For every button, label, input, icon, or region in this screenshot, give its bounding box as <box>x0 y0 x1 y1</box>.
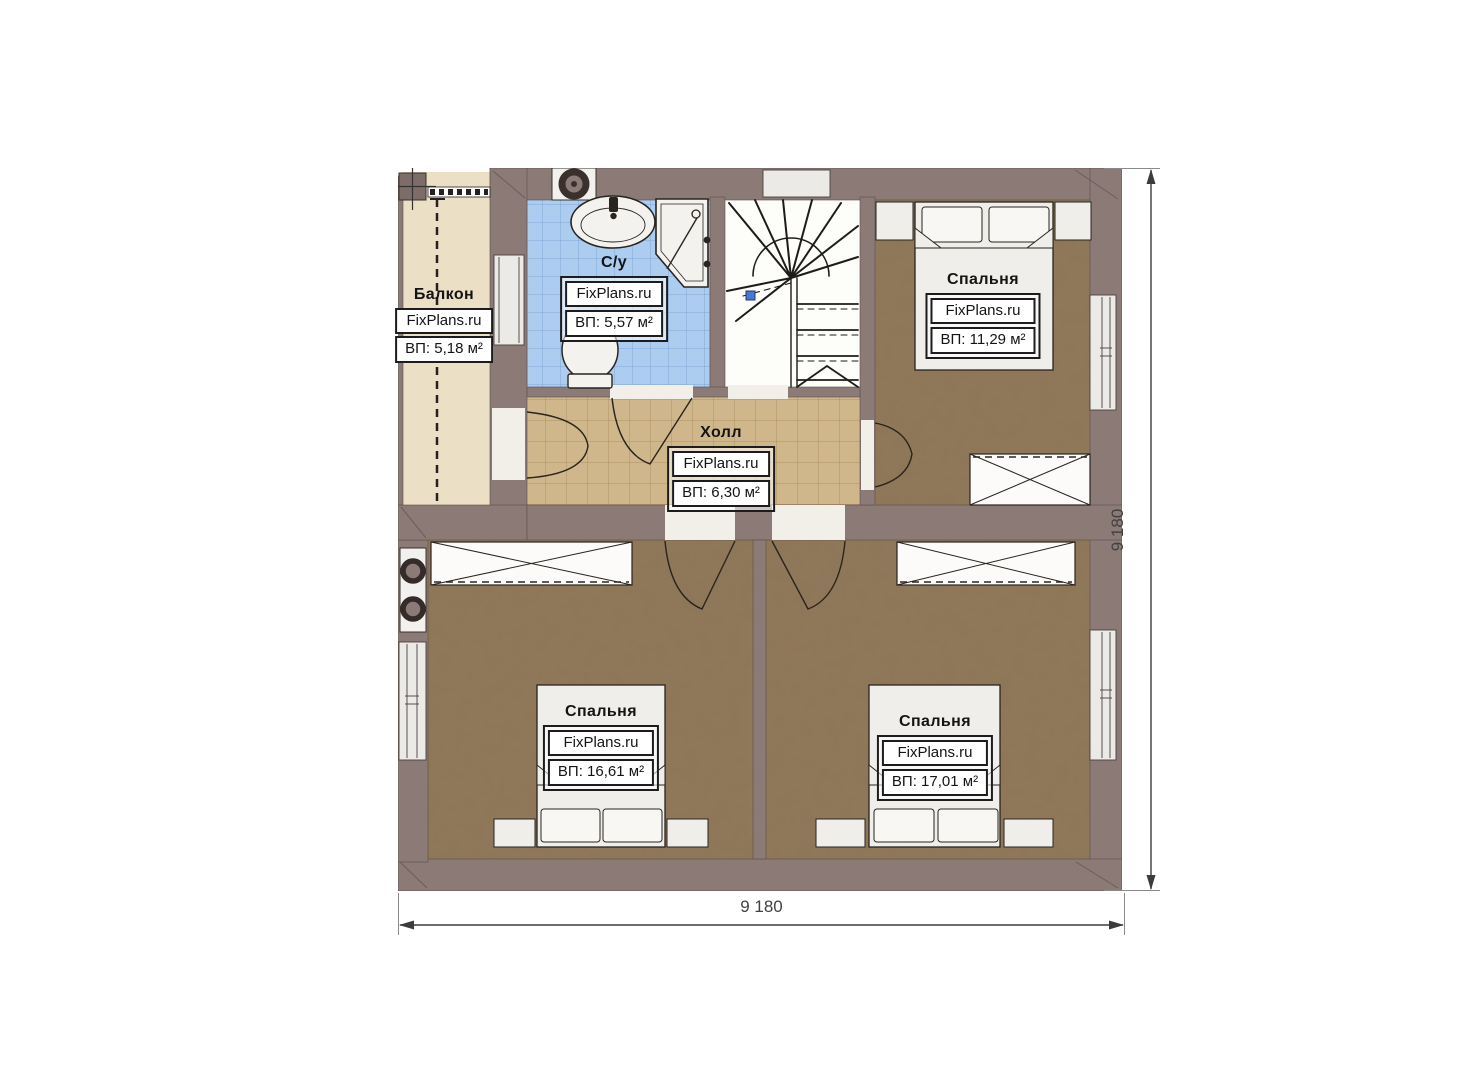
pillow <box>874 809 934 842</box>
nightstand <box>1055 202 1091 240</box>
nightstand <box>667 819 708 847</box>
watermark-text: FixPlans.ru <box>882 740 988 766</box>
watermark-frame: FixPlans.ru ВП: 17,01 м² <box>877 735 993 801</box>
wardrobe-top <box>970 454 1090 505</box>
wall-mid-left <box>398 505 527 540</box>
pillow <box>922 207 982 242</box>
nightstand <box>816 819 865 847</box>
room-label-bedroom-top: Спальня FixPlans.ru ВП: 11,29 м² <box>925 271 1040 359</box>
window-top <box>763 170 830 197</box>
window-balcony-niche <box>494 255 524 345</box>
room-area: ВП: 11,29 м² <box>930 327 1035 353</box>
room-label-balcony: Балкон FixPlans.ru ВП: 5,18 м² <box>395 286 493 363</box>
room-area: ВП: 6,30 м² <box>672 480 770 506</box>
watermark-frame: FixPlans.ru ВП: 6,30 м² <box>667 446 775 512</box>
watermark-frame: FixPlans.ru ВП: 5,57 м² <box>560 276 668 342</box>
chimney-flues-icon <box>400 548 426 632</box>
room-label-bedroom-left: Спальня FixPlans.ru ВП: 16,61 м² <box>543 703 659 791</box>
room-area: ВП: 17,01 м² <box>882 769 988 795</box>
pillow <box>989 207 1049 242</box>
pillow <box>541 809 600 842</box>
floor-plan: Балкон FixPlans.ru ВП: 5,18 м² С/у FixPl… <box>398 168 1122 891</box>
dimension-value-bottom: 9 180 <box>398 897 1125 917</box>
stair-floor <box>725 197 860 389</box>
nightstand <box>1004 819 1053 847</box>
wall-bathroom-stairs <box>710 197 725 389</box>
stair-marker <box>746 291 755 300</box>
watermark-text: FixPlans.ru <box>548 730 654 756</box>
dimension-right: 9 180 <box>1090 168 1170 891</box>
watermark-text: FixPlans.ru <box>930 298 1035 324</box>
opening-bedroom-top <box>861 420 874 490</box>
room-area: ВП: 5,57 м² <box>565 310 663 336</box>
room-label-bathroom: С/у FixPlans.ru ВП: 5,57 м² <box>560 254 668 342</box>
room-name: С/у <box>601 254 627 272</box>
sink-icon <box>571 196 655 248</box>
room-area: ВП: 16,61 м² <box>548 759 654 785</box>
room-label-bedroom-right: Спальня FixPlans.ru ВП: 17,01 м² <box>877 713 993 801</box>
wall-bottom <box>398 859 1122 891</box>
room-area: ВП: 5,18 м² <box>395 336 493 362</box>
watermark-frame: FixPlans.ru ВП: 11,29 м² <box>925 293 1040 359</box>
opening-balcony <box>492 408 525 480</box>
opening-bedroom-right <box>772 505 845 540</box>
dimension-bottom: 9 180 <box>398 891 1125 947</box>
dimension-value-right: 9 180 <box>1108 508 1128 551</box>
watermark-frame: FixPlans.ru ВП: 16,61 м² <box>543 725 659 791</box>
room-name: Балкон <box>414 286 474 304</box>
watermark-text: FixPlans.ru <box>565 281 663 307</box>
dimension-line-right <box>1090 168 1170 891</box>
nightstand <box>494 819 535 847</box>
watermark-text: FixPlans.ru <box>672 451 770 477</box>
opening-bathroom <box>610 385 693 399</box>
nightstand <box>876 202 913 240</box>
floor-plan-canvas: Балкон FixPlans.ru ВП: 5,18 м² С/у FixPl… <box>0 0 1473 1080</box>
wardrobe-right <box>897 542 1075 585</box>
watermark-frame: FixPlans.ru ВП: 5,18 м² <box>395 308 493 363</box>
pillow <box>938 809 998 842</box>
vent-pipe-icon <box>552 168 596 200</box>
room-name: Холл <box>700 424 742 442</box>
watermark-text: FixPlans.ru <box>395 308 493 334</box>
room-name: Спальня <box>565 703 637 721</box>
opening-stairs <box>728 385 788 399</box>
room-label-hall: Холл FixPlans.ru ВП: 6,30 м² <box>667 424 775 512</box>
room-name: Спальня <box>899 713 971 731</box>
wardrobe-left <box>431 542 632 585</box>
window-left-lower <box>399 642 426 760</box>
room-name: Спальня <box>947 271 1019 289</box>
pillow <box>603 809 662 842</box>
wall-bedroom-partition <box>753 540 766 859</box>
